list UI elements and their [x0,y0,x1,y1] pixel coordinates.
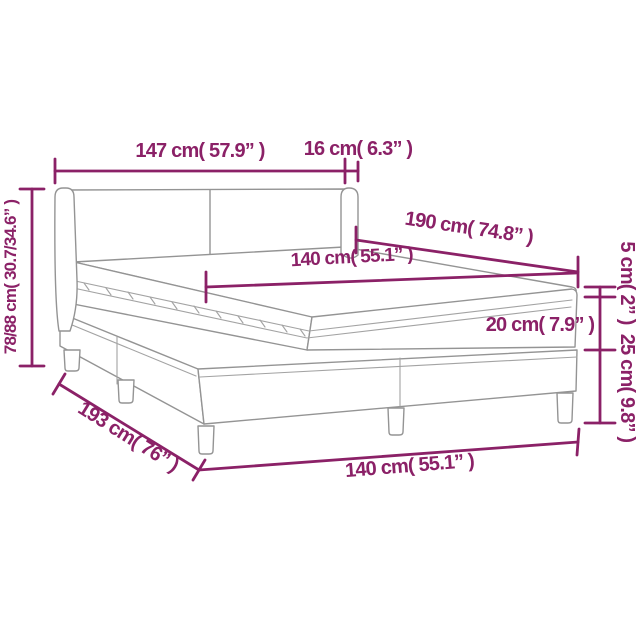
dim-label-headboard-width: 147 cm( 57.9” ) [135,140,264,162]
leg-front-mid [388,408,404,435]
leg-right-corner [557,393,573,423]
leg-mid-left [118,380,134,403]
dim-label-mattress-height: 20 cm( 7.9” ) [486,314,595,336]
dim-label-headboard-depth: 16 cm( 6.3” ) [304,138,413,160]
dim-headboard-depth: 16 cm( 6.3” ) [304,138,413,181]
dim-right-heights: 5 cm( 2” ) 25 cm( 9.8” ) [585,241,638,442]
dim-bed-width: 140 cm( 55.1” ) [199,429,579,482]
dim-label-bed-length-diagonal: 190 cm( 74.8” ) [403,208,534,249]
dim-label-bed-width: 140 cm( 55.1” ) [344,450,475,482]
leg-front-corner [198,426,214,454]
leg-back-left [64,350,80,371]
diagram-canvas: 147 cm( 57.9” ) 16 cm( 6.3” ) 78/88 cm( … [0,0,640,640]
dim-label-topper-height: 5 cm( 2” ) [616,241,638,324]
dim-label-base-height: 25 cm( 9.8” ) [616,334,638,443]
dimension-diagram: 147 cm( 57.9” ) 16 cm( 6.3” ) 78/88 cm( … [0,0,640,640]
dim-label-headboard-height: 78/88 cm( 30.7/34.6” ) [1,200,20,355]
dim-headboard-width: 147 cm( 57.9” ) [55,140,345,183]
headboard-post-left [55,188,77,331]
dim-headboard-height: 78/88 cm( 30.7/34.6” ) [1,189,44,366]
dim-label-bed-length: 193 cm( 76” ) [74,397,183,476]
base-side-front [198,350,577,424]
